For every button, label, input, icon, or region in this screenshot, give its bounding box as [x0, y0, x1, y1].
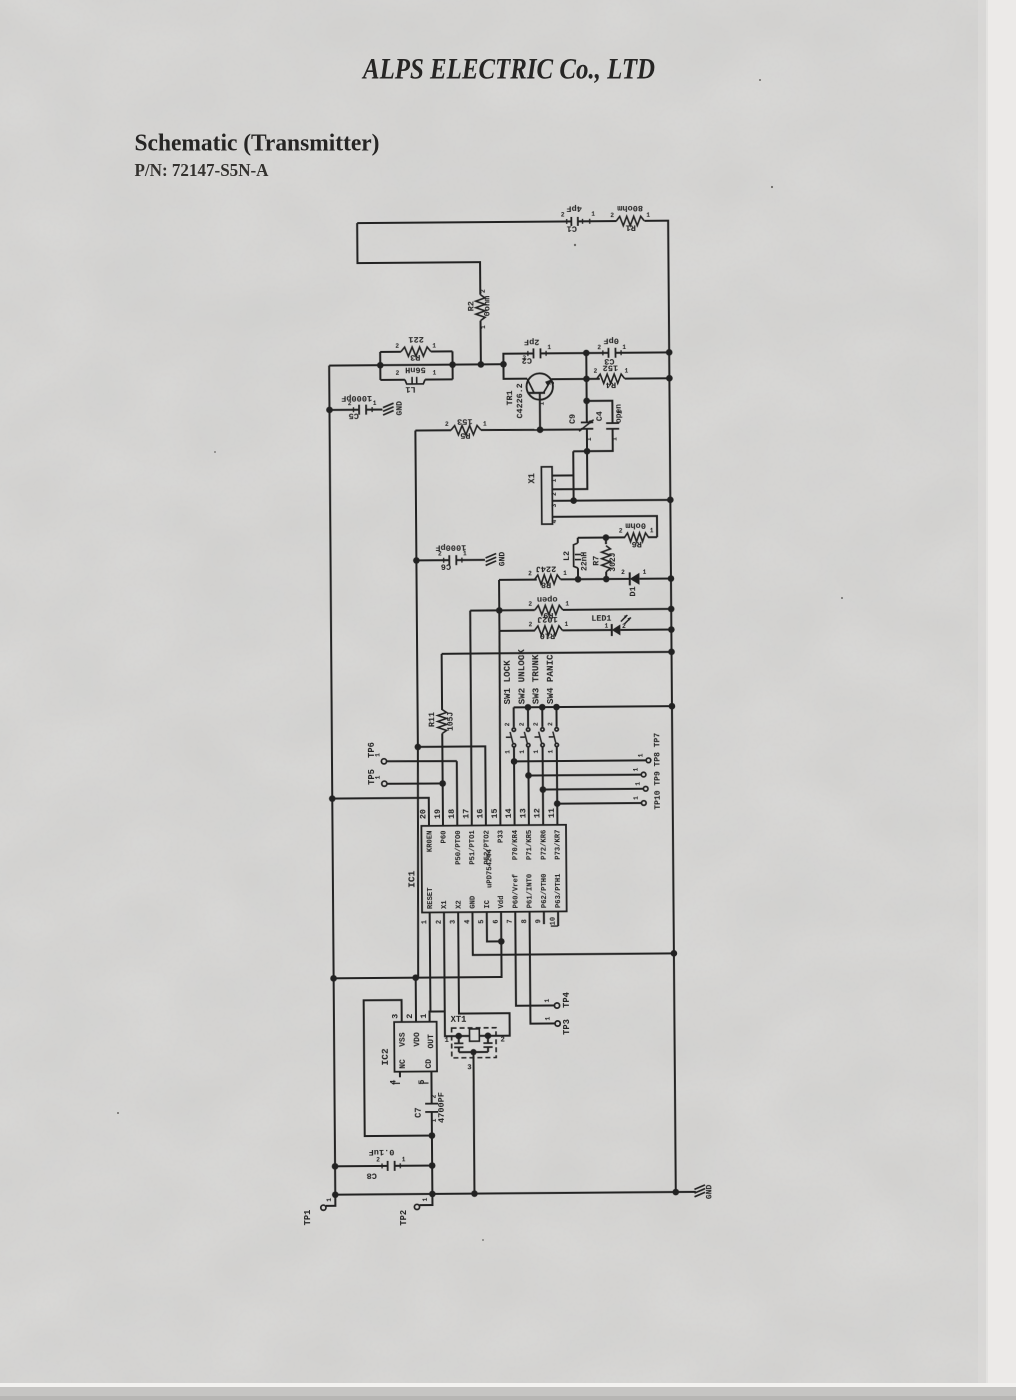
svg-text:1: 1: [544, 998, 551, 1002]
svg-text:2: 2: [348, 400, 352, 407]
svg-text:10: 10: [550, 917, 558, 925]
svg-text:1: 1: [432, 342, 436, 349]
svg-text:0ohm: 0ohm: [482, 296, 492, 317]
svg-text:L1: L1: [405, 384, 415, 394]
svg-text:1: 1: [622, 344, 626, 351]
svg-text:TP5: TP5: [367, 769, 377, 785]
svg-text:1: 1: [433, 369, 437, 376]
svg-text:1: 1: [591, 211, 595, 218]
svg-text:P50/PTO0: P50/PTO0: [455, 830, 463, 865]
svg-text:VSS: VSS: [399, 1032, 408, 1047]
svg-text:302J: 302J: [609, 552, 618, 571]
svg-text:2: 2: [621, 569, 625, 576]
svg-text:OUT: OUT: [427, 1034, 436, 1049]
svg-text:224J: 224J: [536, 564, 557, 574]
svg-text:2: 2: [519, 722, 526, 726]
svg-text:C1: C1: [567, 223, 577, 233]
svg-text:2: 2: [480, 289, 487, 293]
svg-text:X1: X1: [527, 473, 537, 484]
svg-text:C5: C5: [349, 411, 359, 421]
svg-text:TP3: TP3: [562, 1019, 572, 1035]
svg-text:1: 1: [551, 478, 558, 482]
svg-text:1: 1: [563, 570, 567, 577]
svg-text:P63/PTH1: P63/PTH1: [555, 873, 563, 908]
svg-text:IC2: IC2: [380, 1048, 391, 1065]
svg-text:2: 2: [622, 623, 626, 630]
svg-text:153: 153: [457, 416, 473, 426]
svg-text:2: 2: [617, 410, 624, 414]
svg-text:1: 1: [421, 920, 429, 924]
svg-text:4700PF: 4700PF: [437, 1092, 447, 1123]
svg-text:2: 2: [405, 1014, 415, 1019]
svg-text:C7: C7: [414, 1107, 424, 1118]
svg-text:2: 2: [522, 355, 526, 362]
svg-text:P71/KR5: P71/KR5: [526, 830, 534, 860]
svg-text:R7: R7: [591, 556, 601, 566]
svg-text:2: 2: [504, 722, 511, 726]
svg-text:4: 4: [388, 1080, 398, 1085]
svg-text:1: 1: [431, 1118, 438, 1122]
svg-text:X2: X2: [455, 900, 463, 909]
svg-text:2: 2: [438, 550, 442, 557]
svg-text:Vdd: Vdd: [498, 896, 506, 909]
svg-text:1000pF: 1000pF: [341, 393, 372, 403]
svg-text:1: 1: [611, 437, 618, 441]
svg-text:TP4: TP4: [562, 991, 572, 1008]
svg-text:open: open: [537, 594, 558, 604]
svg-text:P72/KR6: P72/KR6: [541, 830, 549, 860]
svg-text:16: 16: [475, 809, 485, 819]
svg-text:2: 2: [500, 1036, 504, 1044]
svg-text:19: 19: [433, 809, 443, 819]
svg-text:D1: D1: [628, 586, 638, 596]
svg-text:1: 1: [643, 569, 647, 576]
svg-text:2: 2: [396, 370, 400, 377]
svg-text:1: 1: [504, 750, 511, 754]
svg-text:3: 3: [450, 920, 458, 924]
svg-text:Schematic (Transmitter): Schematic (Transmitter): [135, 131, 380, 157]
svg-text:14: 14: [504, 808, 514, 818]
svg-text:R6: R6: [632, 539, 642, 549]
svg-text:1: 1: [373, 400, 377, 407]
svg-text:9: 9: [535, 919, 543, 923]
svg-text:1: 1: [544, 1016, 551, 1020]
svg-text:12: 12: [533, 808, 543, 818]
svg-text:5: 5: [417, 1080, 427, 1085]
svg-text:152: 152: [603, 363, 619, 373]
svg-text:R1: R1: [626, 222, 636, 232]
svg-text:1: 1: [480, 325, 487, 329]
svg-text:C4226.2: C4226.2: [515, 383, 525, 418]
svg-text:1: 1: [422, 1197, 429, 1201]
svg-text:2: 2: [436, 920, 444, 924]
svg-text:2: 2: [561, 211, 565, 218]
svg-text:1: 1: [547, 749, 554, 753]
svg-text:P/N: 72147-S5N-A: P/N: 72147-S5N-A: [135, 160, 269, 180]
svg-text:15: 15: [490, 808, 500, 818]
svg-text:CD: CD: [425, 1059, 434, 1069]
svg-text:2: 2: [529, 621, 533, 628]
svg-text:SW4 PANIC: SW4 PANIC: [545, 654, 556, 704]
svg-text:R8: R8: [541, 580, 551, 590]
svg-text:1: 1: [483, 421, 487, 428]
svg-text:P52/PTO2: P52/PTO2: [483, 830, 491, 865]
svg-text:P61/INT0: P61/INT0: [527, 874, 535, 909]
svg-text:1: 1: [565, 600, 569, 607]
svg-text:4pF: 4pF: [566, 203, 582, 213]
svg-text:P62/PTH0: P62/PTH0: [541, 874, 549, 909]
svg-text:1: 1: [633, 767, 640, 771]
svg-text:105J: 105J: [447, 712, 456, 731]
svg-text:1: 1: [637, 753, 644, 757]
svg-text:1: 1: [419, 1014, 429, 1019]
svg-text:GND: GND: [498, 552, 507, 567]
svg-text:IC1: IC1: [406, 870, 417, 887]
svg-text:0ohm: 0ohm: [625, 520, 646, 530]
svg-text:2: 2: [547, 722, 554, 726]
svg-text:R4: R4: [606, 380, 616, 390]
svg-text:17: 17: [461, 809, 471, 819]
svg-text:1: 1: [519, 750, 526, 754]
svg-text:1: 1: [605, 623, 609, 630]
svg-text:P70/KR4: P70/KR4: [512, 829, 520, 860]
svg-text:13: 13: [518, 808, 528, 818]
svg-text:1: 1: [402, 1156, 406, 1163]
svg-text:2: 2: [597, 344, 601, 351]
svg-text:18: 18: [447, 809, 457, 819]
svg-text:5: 5: [478, 920, 486, 924]
svg-text:P33: P33: [498, 830, 506, 843]
svg-text:SW2 UNLOCK: SW2 UNLOCK: [516, 649, 527, 705]
svg-text:P60: P60: [441, 830, 449, 843]
svg-text:1: 1: [565, 621, 569, 628]
svg-text:P60/Vref: P60/Vref: [512, 874, 520, 909]
svg-text:C8: C8: [367, 1170, 377, 1180]
svg-text:RESET: RESET: [427, 887, 435, 909]
svg-text:0.1uF: 0.1uF: [369, 1147, 395, 1157]
svg-text:2: 2: [431, 1094, 438, 1098]
svg-text:1: 1: [463, 550, 467, 557]
svg-text:2: 2: [594, 368, 598, 375]
svg-text:1: 1: [326, 1198, 333, 1202]
svg-text:1: 1: [586, 437, 593, 441]
svg-text:1: 1: [650, 527, 654, 534]
svg-text:GND: GND: [470, 895, 478, 909]
svg-text:GND: GND: [705, 1184, 714, 1199]
svg-text:2: 2: [551, 492, 558, 496]
svg-text:1: 1: [633, 796, 640, 800]
svg-text:NC: NC: [399, 1059, 408, 1069]
svg-text:L2: L2: [562, 551, 572, 561]
svg-text:3: 3: [551, 503, 558, 507]
svg-text:2: 2: [619, 528, 623, 535]
svg-text:2: 2: [445, 421, 449, 428]
svg-text:R10: R10: [540, 631, 556, 641]
svg-text:ALPS ELECTRIC Co., LTD: ALPS ELECTRIC Co., LTD: [361, 53, 655, 86]
svg-text:2: 2: [395, 343, 399, 350]
svg-text:TP10 TP9 TP8 TP7: TP10 TP9 TP8 TP7: [653, 733, 663, 810]
svg-text:C6: C6: [441, 561, 451, 571]
svg-text:2: 2: [528, 570, 532, 577]
svg-text:GND: GND: [396, 401, 405, 416]
svg-text:22nH: 22nH: [580, 551, 589, 570]
svg-text:X1: X1: [441, 900, 449, 909]
svg-text:TP6: TP6: [367, 742, 377, 758]
svg-text:102J: 102J: [537, 614, 558, 624]
svg-text:C4: C4: [595, 411, 605, 421]
svg-text:XT1: XT1: [451, 1015, 467, 1025]
svg-text:2: 2: [376, 1156, 380, 1163]
svg-text:56nH: 56nH: [405, 365, 426, 375]
svg-text:IC: IC: [484, 899, 492, 908]
svg-text:1: 1: [547, 344, 551, 351]
svg-text:TR1: TR1: [505, 390, 515, 405]
svg-text:TP1: TP1: [303, 1210, 313, 1226]
svg-text:1: 1: [533, 750, 540, 754]
svg-text:7: 7: [507, 919, 515, 923]
svg-text:VDO: VDO: [413, 1032, 422, 1047]
svg-text:1: 1: [538, 401, 545, 405]
svg-text:1: 1: [635, 782, 642, 786]
svg-text:0pF: 0pF: [603, 336, 619, 346]
svg-text:80ohm: 80ohm: [617, 203, 643, 213]
svg-text:2: 2: [528, 601, 532, 608]
svg-text:1: 1: [646, 212, 650, 219]
svg-text:SW1 LOCK: SW1 LOCK: [502, 660, 513, 705]
svg-text:TP2: TP2: [399, 1210, 409, 1226]
svg-text:2: 2: [533, 722, 540, 726]
svg-text:6: 6: [493, 919, 501, 923]
svg-text:8: 8: [521, 919, 529, 923]
svg-text:R2: R2: [466, 301, 476, 311]
svg-text:LED1: LED1: [591, 614, 611, 624]
svg-text:R5: R5: [460, 430, 470, 440]
svg-text:11: 11: [547, 808, 557, 818]
svg-text:C9: C9: [568, 414, 578, 424]
svg-text:R3: R3: [410, 352, 420, 362]
svg-text:P51/PTO1: P51/PTO1: [469, 830, 477, 865]
svg-text:SW3 TRUNK: SW3 TRUNK: [530, 654, 541, 704]
svg-text:3: 3: [390, 1014, 400, 1019]
svg-text:KR0EN: KR0EN: [426, 831, 434, 853]
svg-text:221: 221: [408, 334, 424, 344]
svg-text:R11: R11: [427, 712, 437, 727]
svg-text:3: 3: [467, 1064, 471, 1072]
svg-text:4: 4: [551, 519, 558, 523]
svg-text:2pF: 2pF: [524, 337, 540, 347]
svg-text:4: 4: [464, 920, 472, 924]
svg-text:2: 2: [610, 212, 614, 219]
svg-text:P73/KR7: P73/KR7: [555, 830, 563, 860]
svg-text:1: 1: [444, 1037, 449, 1045]
svg-text:1: 1: [625, 367, 629, 374]
svg-text:20: 20: [418, 809, 428, 819]
svg-text:3: 3: [549, 381, 556, 385]
